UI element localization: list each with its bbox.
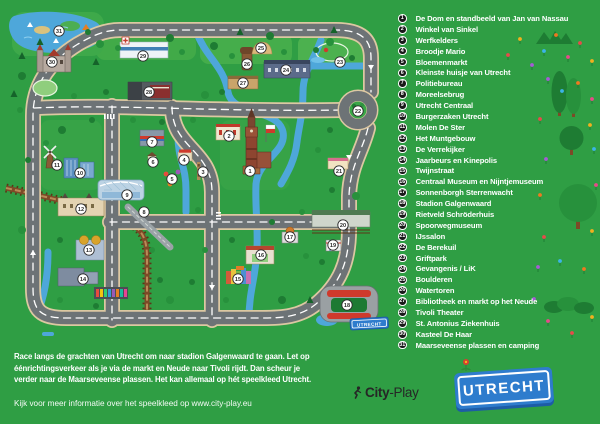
legend-item-number: 11 (398, 123, 407, 132)
legend-item-number: 3 (398, 36, 407, 45)
legend-item-number: 22 (398, 243, 407, 252)
legend-item-number: 1 (398, 14, 407, 23)
tree-icon (190, 117, 196, 123)
legend-item-label: Spoorwegmuseum (416, 221, 483, 230)
legend-item-number: 4 (398, 47, 407, 56)
svg-text:31: 31 (56, 29, 62, 35)
tree-icon (223, 297, 229, 303)
legend-item-number: 18 (398, 199, 407, 208)
svg-text:12: 12 (78, 207, 84, 213)
map-marker-5: 5 (167, 174, 177, 184)
legend-item-number: 8 (398, 90, 407, 99)
legend-item-label: IJssalon (416, 232, 446, 241)
intro-line: verder naar de Maarseveense plassen. Het… (14, 374, 354, 386)
brand-name-rest: -Play (389, 385, 418, 400)
map-marker-21: 21 (334, 166, 344, 176)
legend-item: 26Watertoren (398, 285, 598, 296)
legend-item: 1De Dom en standbeeld van Jan van Nassau (398, 13, 598, 24)
svg-text:23: 23 (337, 60, 343, 66)
tree-icon (85, 29, 91, 35)
city-play-logo-icon (351, 386, 362, 400)
legend-item-number: 12 (398, 134, 407, 143)
tree-icon (269, 219, 275, 225)
tree-icon (96, 40, 104, 48)
map-marker-7: 7 (147, 137, 157, 147)
tree-icon (130, 117, 136, 123)
map-marker-6: 6 (148, 157, 158, 167)
tree-icon (115, 45, 121, 51)
legend-item-label: Twijnstraat (416, 166, 454, 175)
legend-item-label: Moreelsebrug (416, 90, 465, 99)
svg-text:1: 1 (248, 169, 251, 175)
svg-text:19: 19 (330, 243, 336, 249)
map-marker-31: 31 (54, 26, 64, 36)
svg-text:27: 27 (240, 81, 246, 87)
map-marker-10: 10 (75, 168, 85, 178)
tree-icon (166, 296, 174, 304)
map-marker-29: 29 (138, 51, 148, 61)
legend-item-label: Politiebureau (416, 79, 463, 88)
legend-item-label: Watertoren (416, 286, 455, 295)
tree-icon (349, 55, 355, 61)
legend-item: 22De Berekuil (398, 242, 598, 253)
legend-item-label: Broodje Mario (416, 47, 466, 56)
map-marker-28: 28 (144, 87, 154, 97)
map-marker-20: 20 (338, 220, 348, 230)
playmat-flyer: { "legend": { "items": [ {"num":"1","lab… (0, 0, 600, 424)
tree-icon (327, 127, 333, 133)
legend-item: 6Kleinste huisje van Utrecht (398, 67, 598, 78)
legend-item-label: Winkel van Sinkel (416, 25, 478, 34)
legend-item-label: Stadion Galgenwaard (416, 199, 492, 208)
tree-icon (329, 187, 335, 193)
tree-icon (266, 32, 274, 40)
tree-icon (25, 157, 31, 163)
brand-name-bold: City (365, 385, 389, 400)
tree-icon (315, 147, 321, 153)
tree-icon (202, 247, 208, 253)
legend-item-label: Maarseveense plassen en camping (416, 341, 540, 350)
legend-item-label: St. Antonius Ziekenhuis (416, 319, 500, 328)
tree-icon (319, 259, 325, 265)
map-marker-30: 30 (47, 57, 57, 67)
svg-text:5: 5 (170, 177, 173, 183)
tree-icon (189, 279, 195, 285)
legend-item: 2Winkel van Sinkel (398, 24, 598, 35)
intro-text: Race langs de grachten van Utrecht om na… (14, 351, 354, 386)
legend-item: 8Moreelsebrug (398, 89, 598, 100)
svg-text:26: 26 (244, 62, 250, 68)
svg-text:13: 13 (86, 248, 92, 254)
map-marker-8: 8 (139, 207, 149, 217)
svg-text:9: 9 (125, 193, 128, 199)
legend-item: 21IJssalon (398, 231, 598, 242)
map-marker-3: 3 (198, 167, 208, 177)
legend-item-number: 10 (398, 112, 407, 121)
tree-icon (57, 297, 63, 303)
svg-text:10: 10 (77, 171, 83, 177)
svg-text:8: 8 (142, 210, 145, 216)
intro-line: Race langs de grachten van Utrecht om na… (14, 351, 354, 363)
conifer-icon (11, 90, 18, 97)
legend-item-number: 29 (398, 319, 407, 328)
legend-item-label: Molen De Ster (416, 123, 465, 132)
legend-item: 30Kasteel De Haar (398, 329, 598, 340)
map-marker-25: 25 (256, 43, 266, 53)
legend-item-label: Bloemenmarkt (416, 58, 468, 67)
map-marker-11: 11 (52, 160, 62, 170)
legend-item: 24Gevangenis / LiK (398, 263, 598, 274)
svg-text:7: 7 (150, 140, 153, 146)
legend-item: 11Molen De Ster (398, 122, 598, 133)
legend-item: 18Stadion Galgenwaard (398, 198, 598, 209)
legend-item-label: Jaarbeurs en Kinepolis (416, 156, 497, 165)
legend-item: 4Broodje Mario (398, 46, 598, 57)
city-play-logo: City-Play (351, 385, 419, 400)
tree-icon (278, 296, 286, 304)
legend-item-number: 27 (398, 297, 407, 306)
legend-item: 25Boulderen (398, 274, 598, 285)
legend-item-label: De Dom en standbeeld van Jan van Nassau (416, 14, 569, 23)
legend-item-label: Werfkelders (416, 36, 458, 45)
tree-icon (43, 140, 49, 146)
svg-text:25: 25 (258, 46, 264, 52)
map-utrecht-sign: UTRECHT (350, 317, 389, 330)
map-marker-27: 27 (238, 78, 248, 88)
legend-item: 17Sonnenborgh Sterrenwacht (398, 187, 598, 198)
tree-icon (103, 89, 109, 95)
tree-icon (17, 107, 23, 113)
map-marker-26: 26 (242, 59, 252, 69)
sign-flower-icon (458, 357, 474, 373)
legend-item: 13De Verrekijker (398, 144, 598, 155)
map-marker-15: 15 (233, 274, 243, 284)
legend-item-number: 2 (398, 25, 407, 34)
map-marker-12: 12 (76, 204, 86, 214)
legend-item: 29St. Antonius Ziekenhuis (398, 318, 598, 329)
legend-item-number: 19 (398, 210, 407, 219)
svg-text:16: 16 (258, 253, 264, 259)
legend-item-number: 23 (398, 254, 407, 263)
utrecht-sign: UTRECHT (454, 367, 554, 410)
legend-item: 14Jaarbeurs en Kinepolis (398, 155, 598, 166)
svg-text:2: 2 (227, 134, 230, 140)
map-marker-13: 13 (84, 245, 94, 255)
legend-item-number: 28 (398, 308, 407, 317)
tree-icon (326, 38, 334, 46)
legend-item-number: 25 (398, 276, 407, 285)
legend-item: 23Griftpark (398, 253, 598, 264)
map-marker-14: 14 (78, 274, 88, 284)
legend-item-label: De Verrekijker (416, 145, 465, 154)
map-marker-4: 4 (179, 155, 189, 165)
legend-item-number: 16 (398, 178, 407, 187)
tree-icon (303, 253, 309, 259)
tree-icon (352, 192, 360, 200)
legend-item-label: Centraal Museum en Nijntjemuseum (416, 177, 544, 186)
utrecht-sign-border (457, 370, 551, 406)
legend-item-label: Rietveld Schröderhuis (416, 210, 495, 219)
legend-item-number: 26 (398, 286, 407, 295)
legend-item-number: 13 (398, 145, 407, 154)
svg-text:6: 6 (151, 160, 154, 166)
tree-icon (195, 207, 201, 213)
legend-item-label: Gevangenis / LiK (416, 264, 476, 273)
legend-item-number: 24 (398, 265, 407, 274)
tree-icon (57, 237, 63, 243)
legend-item-number: 20 (398, 221, 407, 230)
legend-item-number: 17 (398, 188, 407, 197)
legend-item-number: 7 (398, 79, 407, 88)
legend-item-label: Bibliotheek en markt op het Neude (416, 297, 538, 306)
legend-item: 10Burgerzaken Utrecht (398, 111, 598, 122)
map-marker-1: 1 (245, 166, 255, 176)
tree-icon (229, 237, 235, 243)
legend-item: 5Bloemenmarkt (398, 57, 598, 68)
info-text: Kijk voor meer informatie over het speel… (14, 399, 252, 408)
legend-item: 27Bibliotheek en markt op het Neude (398, 296, 598, 307)
tree-icon (159, 119, 165, 125)
svg-text:11: 11 (54, 163, 60, 169)
map-marker-16: 16 (256, 250, 266, 260)
map-marker-9: 9 (122, 190, 132, 200)
tree-icon (201, 91, 209, 99)
svg-text:18: 18 (344, 303, 350, 309)
conifer-icon (93, 58, 100, 65)
tree-icon (18, 226, 26, 234)
tree-icon (210, 42, 218, 50)
tree-icon (313, 47, 319, 53)
tree-icon (93, 303, 99, 309)
legend-item-label: De Berekuil (416, 243, 457, 252)
legend-item-label: Griftpark (416, 254, 447, 263)
map-marker-17: 17 (285, 232, 295, 242)
legend-item: 28Tivoli Theater (398, 307, 598, 318)
tree-icon (157, 277, 163, 283)
map-marker-23: 23 (335, 57, 345, 67)
tree-icon (149, 247, 155, 253)
legend-item: 9Utrecht Centraal (398, 100, 598, 111)
legend-item: 15Twijnstraat (398, 165, 598, 176)
legend-item: 20Spoorwegmuseum (398, 220, 598, 231)
intro-line: éénrichtingsverkeer als je via de markt … (14, 363, 354, 375)
svg-text:20: 20 (340, 223, 346, 229)
legend-item: 7Politiebureau (398, 78, 598, 89)
legend-item-number: 21 (398, 232, 407, 241)
kasteel-de-haar (33, 44, 71, 96)
svg-text:15: 15 (235, 277, 241, 283)
legend-item-number: 31 (398, 341, 407, 350)
map-marker-19: 19 (328, 240, 338, 250)
svg-text:3: 3 (201, 170, 204, 176)
legend: 1De Dom en standbeeld van Jan van Nassau… (398, 13, 598, 351)
legend-item-label: Tivoli Theater (416, 308, 464, 317)
legend-item-label: Sonnenborgh Sterrenwacht (416, 188, 513, 197)
legend-item-number: 6 (398, 69, 407, 78)
tree-icon (166, 34, 174, 42)
legend-item: 16Centraal Museum en Nijntjemuseum (398, 176, 598, 187)
map-marker-18: 18 (342, 300, 352, 310)
tree-icon (299, 209, 305, 215)
legend-item-label: Boulderen (416, 275, 453, 284)
tree-icon (71, 93, 77, 99)
svg-text:22: 22 (355, 109, 361, 115)
tree-icon (229, 53, 235, 59)
legend-item: 12Het Muntgebouw (398, 133, 598, 144)
legend-item-label: Het Muntgebouw (416, 134, 476, 143)
tree-icon (58, 126, 66, 134)
legend-item-number: 15 (398, 167, 407, 176)
svg-text:14: 14 (80, 277, 87, 283)
map-marker-2: 2 (224, 131, 234, 141)
map-marker-24: 24 (281, 65, 291, 75)
legend-item: 3Werfkelders (398, 35, 598, 46)
tree-icon (281, 49, 287, 55)
svg-text:30: 30 (49, 60, 55, 66)
svg-text:24: 24 (283, 68, 290, 74)
legend-item-number: 14 (398, 156, 407, 165)
tree-icon (18, 72, 26, 80)
legend-item-number: 9 (398, 101, 407, 110)
legend-item-label: Kleinste huisje van Utrecht (416, 68, 511, 77)
legend-item: 19Rietveld Schröderhuis (398, 209, 598, 220)
legend-item-number: 5 (398, 58, 407, 67)
tree-icon (89, 117, 95, 123)
legend-item-label: Burgerzaken Utrecht (416, 112, 489, 121)
tree-icon (219, 89, 225, 95)
tree-icon (179, 49, 185, 55)
svg-text:17: 17 (287, 235, 293, 241)
svg-text:28: 28 (146, 90, 152, 96)
legend-item-label: Kasteel De Haar (416, 330, 472, 339)
svg-text:21: 21 (336, 169, 342, 175)
svg-text:29: 29 (140, 54, 146, 60)
legend-item-label: Utrecht Centraal (416, 101, 473, 110)
map-marker-22: 22 (353, 106, 363, 116)
legend-item-number: 30 (398, 330, 407, 339)
utrecht-centraal-station (98, 180, 144, 200)
legend-item: 31Maarseveense plassen en camping (398, 340, 598, 351)
